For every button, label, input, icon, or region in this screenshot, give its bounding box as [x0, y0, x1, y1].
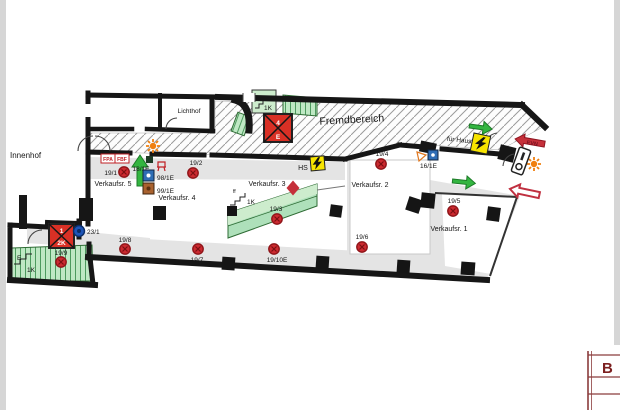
- room-label-verkaufsr-2: Verkaufsr. 2: [352, 182, 389, 189]
- marker-label: 19/3: [270, 206, 283, 213]
- fpa-label: FPA: [103, 157, 113, 163]
- room-label-verkaufsr-4: Verkaufsr. 4: [159, 195, 196, 202]
- scan-edge-right: [614, 0, 620, 345]
- lift-4e-bottom-label: E: [276, 134, 281, 141]
- blue-box-label: 98/1E: [157, 175, 175, 182]
- scan-edge-left: [0, 0, 6, 410]
- hs-label: HS: [298, 165, 308, 172]
- room-label-verkaufsr-5: Verkaufsr. 5: [95, 181, 132, 188]
- stairs-top-label: 1K: [264, 105, 273, 112]
- marker-label: 19/10E: [267, 257, 288, 264]
- stairs-bottom-left: E 1K: [12, 245, 93, 281]
- sun-icon-left: [146, 139, 160, 153]
- sun-icon-right: [527, 157, 541, 171]
- wall-window-gap: [84, 104, 92, 117]
- marker-label: 19/2: [190, 160, 203, 167]
- marker-label: 19/1: [104, 170, 117, 177]
- stairs-1k-mid-label: 1K: [247, 199, 256, 206]
- fbf-label: FBF: [117, 157, 127, 163]
- title-block: B: [588, 346, 620, 410]
- lift-2k: 1 2K: [49, 224, 74, 248]
- floor-plan: 1K E 1K ff 1K: [0, 0, 620, 410]
- marker-label: 19/6: [356, 234, 369, 241]
- marker-label: 19/4: [376, 151, 389, 158]
- marker-label: 19/9: [55, 250, 68, 257]
- title-block-letter: B: [602, 360, 613, 377]
- marker-label: 19/5: [448, 198, 461, 205]
- lift-2k-bottom-label: 2K: [57, 240, 66, 247]
- lift-2k-top-label: 1: [60, 228, 64, 235]
- lift-4e-top-label: 4: [276, 120, 280, 127]
- floor-plan-page: 1K E 1K ff 1K: [0, 0, 620, 410]
- marker-label: 19/8: [119, 237, 132, 244]
- room-label-verkaufsr-3: Verkaufsr. 3: [249, 181, 286, 188]
- fuer-haus-hazard-box: [470, 133, 490, 154]
- marker-label: 23/1: [87, 229, 100, 236]
- stairs-top-box: 1K: [252, 90, 276, 113]
- fpa-fbf-boxes: FPA FBF: [101, 154, 129, 163]
- marker-label: 19/7: [191, 257, 204, 264]
- room-label-verkaufsr-1: Verkaufsr. 1: [431, 226, 468, 233]
- lift-4e: 4 E: [264, 114, 292, 142]
- marker-19-8: 19/8: [119, 237, 132, 254]
- marker-19-9: 19/9: [55, 250, 68, 267]
- blue-box2-label: 16/1E: [420, 163, 438, 170]
- lichthof-label: Lichthof: [178, 108, 201, 115]
- hs-hazard-box: [310, 156, 325, 171]
- brown-box-label: 99/1E: [157, 188, 175, 195]
- stairs-e-label: E: [17, 255, 22, 262]
- innenhof-label: Innenhof: [10, 151, 42, 160]
- stairs-1k-bottom-label: 1K: [27, 267, 36, 274]
